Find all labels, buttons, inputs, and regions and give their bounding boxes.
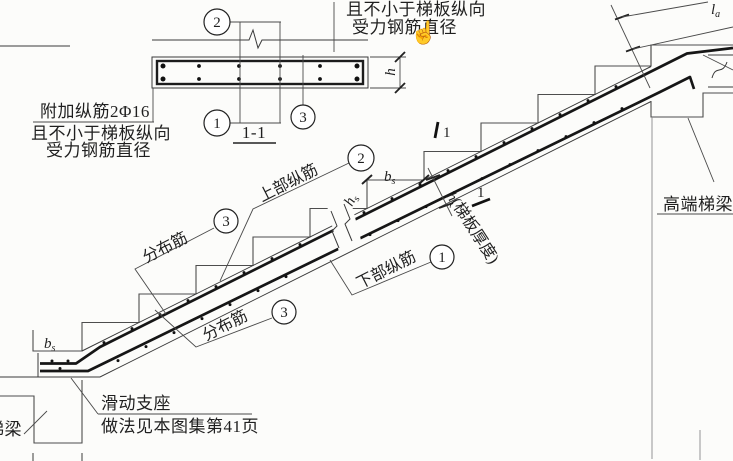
rebar-dot [565,135,568,138]
left-note-line3: 受力钢筋直径 [46,141,151,160]
rebar-dot [369,233,372,236]
top-bar-pointer-line [703,55,733,70]
section-h-dimension: h [370,52,406,93]
section-mark-number: 1 [477,185,485,201]
top-note: 且不小于梯板纵向 受力钢筋直径 ☝ [334,0,486,52]
callout-3-number: 3 [280,305,288,321]
rebar-dot [103,341,106,344]
left-note: 附加纵筋2Φ16 且不小于梯板纵向 受力钢筋直径 [31,88,171,160]
section-mark-number: 1 [443,125,451,141]
rebar-dot [537,149,540,152]
dist-bars-lower-label-group: 分布筋 3 [155,300,296,347]
low-end-beam-leader [24,411,47,434]
corner-bar-dot [355,77,360,82]
low-end-support: 梯梁 [0,380,82,461]
section-cut-mark-upper: 1 [435,122,451,141]
top-note-line2: 受力钢筋直径 [352,18,457,37]
rebar-dot [201,317,204,320]
low-end-beam-label: 梯梁 [0,420,22,439]
rebar-dot [503,141,506,144]
rebar-dot [299,243,302,246]
rebar-dot [173,331,176,334]
section-top-break-line [152,30,368,48]
drawing-sheet: 2 1 3 1-1 h 附加纵筋2Φ16 且不小于梯板纵向 受力钢筋直径 且不小… [0,0,733,461]
rebar-dot [285,275,288,278]
callout-1-number: 1 [213,116,221,132]
rebar-dot [593,121,596,124]
bs-lower-label: bs [44,336,56,354]
dist-bars-upper-label: 分布筋 [140,229,191,267]
high-end-beam-label: 高端梯梁 [663,195,733,214]
rebar-dot [271,257,274,260]
upper-bars-label: 上部纵筋 [256,160,321,205]
rebar-dot [425,205,428,208]
la-label: la [711,2,720,20]
callout-1-number: 1 [438,250,446,266]
rebar-dot [257,289,260,292]
rebar-dot [559,113,562,116]
rebar-dot [51,360,54,363]
lower-bars-label: 下部纵筋 [354,247,419,292]
rebar-dot [397,219,400,222]
slab-section-rebar-cage [157,61,363,84]
callout-2-number: 2 [213,15,221,31]
callout-3-number: 3 [222,214,230,230]
mouse-cursor-icon: ☝ [410,19,437,46]
h-dim-label: h [383,68,399,76]
rebar-dot [475,155,478,158]
left-note-line1: 附加纵筋2Φ16 [40,102,150,121]
section-title: 1-1 [242,123,266,142]
corner-bar-dot [161,64,166,69]
rebar-dot [363,211,366,214]
rebar-dot [67,360,70,363]
high-end-beam: 高端梯梁 [651,45,733,460]
top-rebar-line [40,48,733,364]
corner-bar-dot [355,64,360,69]
section-cut-mark-lower: 1 [472,185,490,206]
stair-detail-drawing: 2 1 3 1-1 h 附加纵筋2Φ16 且不小于梯板纵向 受力钢筋直径 且不小… [0,0,733,461]
top-note-line1: 且不小于梯板纵向 [346,0,486,19]
rebar-dot [187,299,190,302]
rebar-dot [215,285,218,288]
rebar-dot [621,107,624,110]
sliding-support-leader [71,378,98,414]
rebar-dot [509,163,512,166]
rebar-dot [243,271,246,274]
rebar-dot [117,359,120,362]
rebar-dot [131,327,134,330]
rebar-dot [447,169,450,172]
rebar-dot [531,127,534,130]
sliding-support-note: 滑动支座 做法见本图集第41页 [71,378,259,436]
callout-3-number: 3 [299,110,307,126]
stair-steps-outline [33,45,733,351]
bs-upper-label: bs [384,169,396,187]
sliding-support-line2: 做法见本图集第41页 [101,417,259,436]
slab-top-surface [82,67,651,352]
rebar-dot [481,177,484,180]
callout-2-number: 2 [357,151,365,167]
rebar-dot [145,345,148,348]
rebar-dot [615,85,618,88]
corner-bar-dot [161,77,166,82]
rebar-dot [587,99,590,102]
rebar-dot [229,303,232,306]
rebar-dot [59,367,62,370]
high-end-beam-leader [688,118,714,182]
rebar-dot [391,197,394,200]
sliding-support-line1: 滑动支座 [101,394,171,413]
